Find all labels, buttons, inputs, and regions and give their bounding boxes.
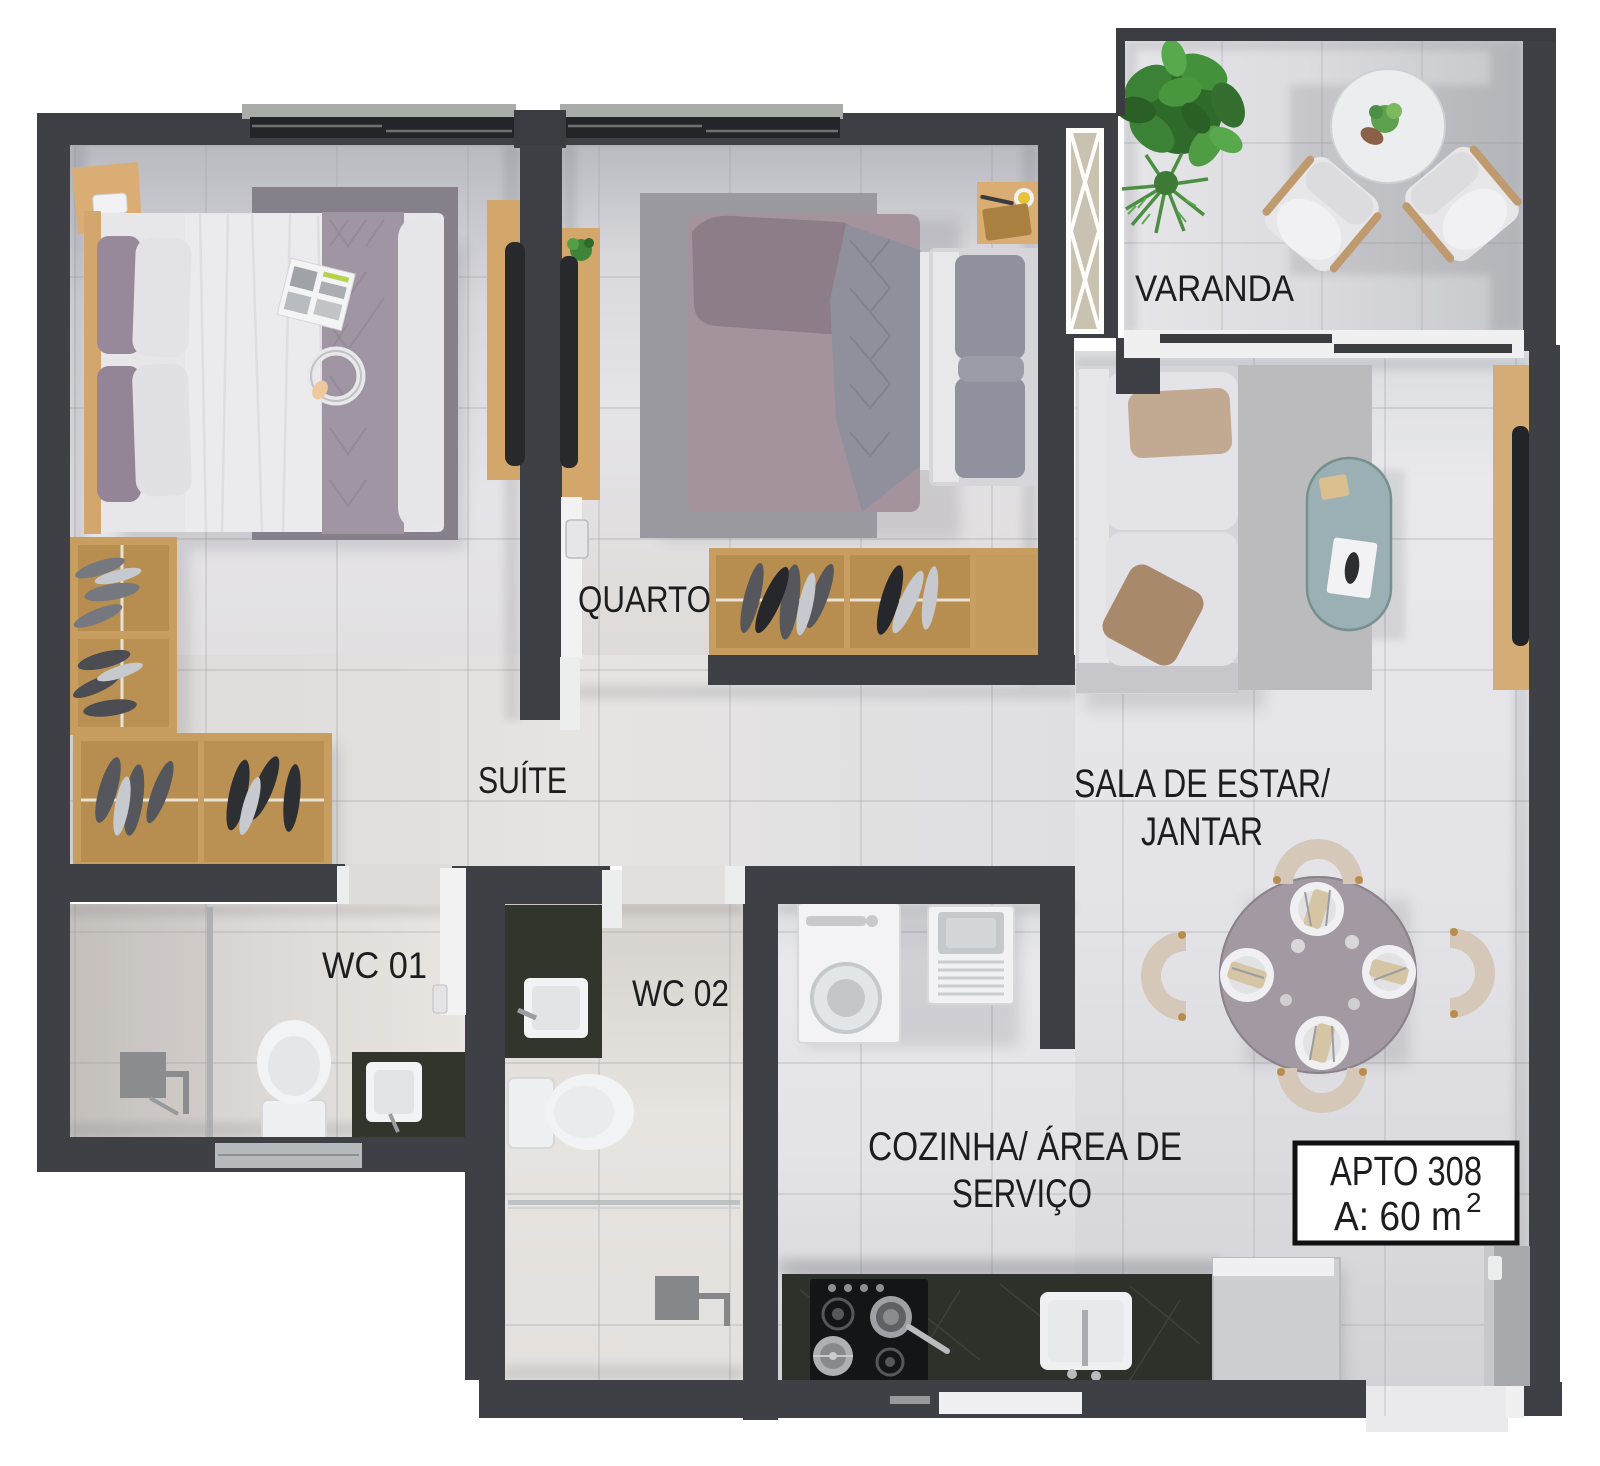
svg-text:SALA DE ESTAR/: SALA DE ESTAR/	[1074, 762, 1331, 806]
svg-text:QUARTO: QUARTO	[578, 579, 711, 620]
svg-text:COZINHA/ ÁREA DE: COZINHA/ ÁREA DE	[868, 1124, 1182, 1169]
svg-text:SERVIÇO: SERVIÇO	[952, 1172, 1092, 1216]
svg-text:APTO 308: APTO 308	[1330, 1148, 1482, 1194]
svg-text:JANTAR: JANTAR	[1141, 810, 1263, 854]
svg-text:WC 02: WC 02	[632, 973, 729, 1014]
svg-text:VARANDA: VARANDA	[1135, 268, 1294, 309]
svg-text:A: 60 m: A: 60 m	[1334, 1193, 1462, 1239]
svg-text:WC 01: WC 01	[322, 945, 427, 986]
svg-text:SUÍTE: SUÍTE	[478, 760, 567, 801]
svg-text:2: 2	[1466, 1187, 1482, 1218]
